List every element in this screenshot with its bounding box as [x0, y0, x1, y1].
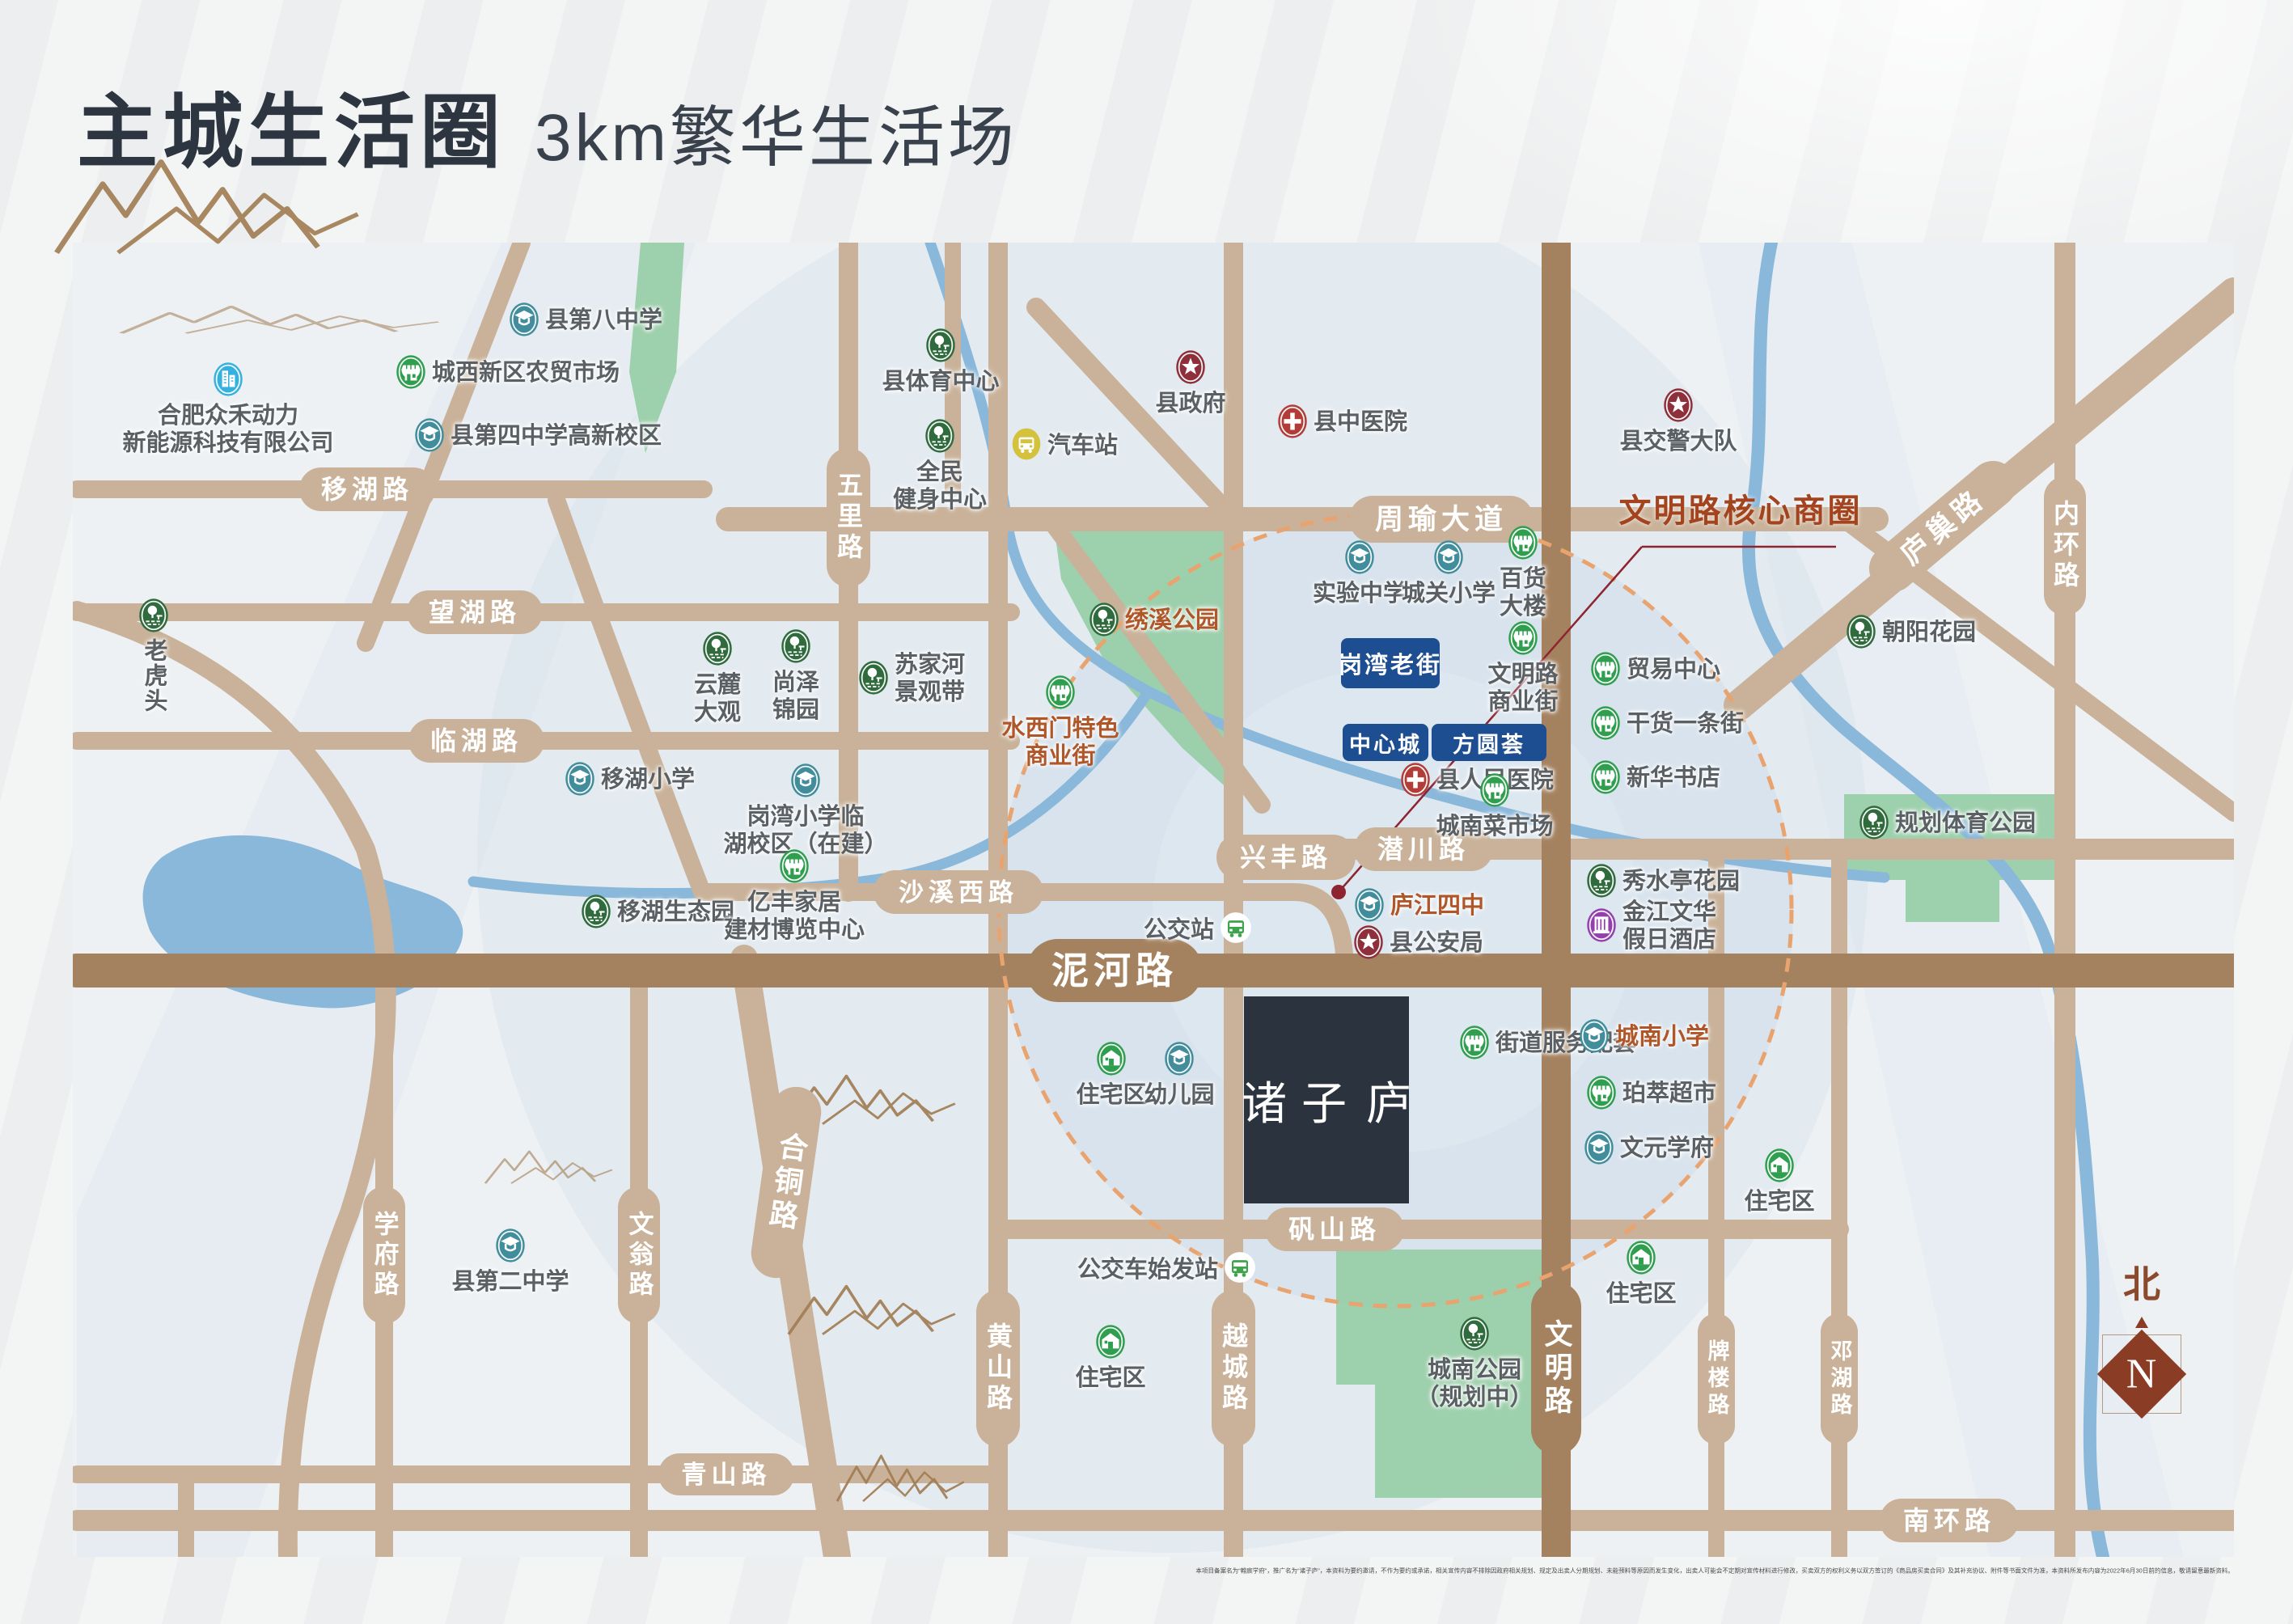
school-icon [509, 302, 539, 343]
poi-label-line: 朝阳花园 [1882, 619, 1976, 646]
park-icon [1459, 1316, 1490, 1357]
poi-label: 珀萃超市 [1622, 1080, 1716, 1107]
hotel-icon [1586, 907, 1617, 949]
shop-icon [1508, 525, 1538, 566]
poi-label: 苏家河景观带 [895, 651, 965, 706]
busGreen-icon [1224, 1251, 1256, 1288]
park-icon [702, 631, 733, 672]
road-label: 学府路 [363, 1186, 405, 1324]
map: 移湖路 望湖路 临湖路 周瑜大道 五里路 潜川路 兴丰路 沙溪西路 泥河路 矾山… [0, 0, 2293, 1624]
commercial-badge: 岗湾老街 [1341, 638, 1440, 688]
house-icon [1095, 1324, 1126, 1365]
busYellow-icon [1011, 427, 1042, 467]
map-overlay: 移湖路 望湖路 临湖路 周瑜大道 五里路 潜川路 兴丰路 沙溪西路 泥河路 矾山… [0, 0, 2293, 1624]
poi-label-line: 干货一条街 [1627, 710, 1744, 738]
poi-label-line: 全民 [893, 459, 987, 486]
school-icon [495, 1228, 526, 1269]
school-icon [414, 417, 445, 459]
poi-label: 规划体育公园 [1895, 810, 2036, 837]
poi-label-line: 城南菜市场 [1436, 813, 1553, 840]
poi-label: 全民健身中心 [893, 459, 987, 514]
road-label: 临湖路 [408, 719, 544, 763]
poi-label: 县第四中学高新校区 [451, 422, 662, 450]
poi-label-line: 幼儿园 [1144, 1081, 1214, 1109]
compass-letter: N [2126, 1351, 2157, 1398]
poi-label: 县第二中学 [451, 1268, 569, 1296]
gov-icon [1175, 349, 1206, 391]
gov-icon [1353, 924, 1384, 966]
road-label: 越城路 [1212, 1290, 1255, 1447]
poi-label-line: 建材博览中心 [724, 916, 865, 944]
poi-label-line: 汽车站 [1047, 432, 1118, 459]
commercial-badge: 中心城 [1343, 724, 1428, 761]
road-label: 五里路 [827, 448, 870, 587]
park-icon [138, 598, 169, 639]
compass-frame: N [2102, 1334, 2181, 1414]
poi-label-line: 文元学府 [1620, 1135, 1714, 1162]
poi-label-line: 金江文华 [1622, 899, 1716, 926]
poi-label: 住宅区 [1075, 1364, 1145, 1392]
poi-label-line: 合肥众禾动力 [122, 402, 333, 429]
park-icon [581, 894, 611, 935]
poi-label: 实验中学 [1313, 580, 1407, 607]
poi-label-line: 县政府 [1155, 390, 1225, 417]
poi-label: 金江文华假日酒店 [1622, 899, 1716, 954]
poi-label-line: 岗湾小学临 [723, 803, 887, 831]
school-icon [1164, 1041, 1195, 1082]
park-icon [1089, 602, 1119, 643]
project-block: 诸 子 庐 [1244, 996, 1409, 1203]
poi-label-line: 移湖小学 [601, 766, 695, 793]
poi-label: 城南公园（规划中） [1415, 1356, 1533, 1411]
poi-label: 县公安局 [1390, 929, 1483, 957]
road-label: 泥河路 [1026, 939, 1203, 1002]
park-icon [781, 628, 811, 670]
poi-label-line: 文明路 [1487, 661, 1558, 688]
poi-label: 尚泽锦园 [772, 669, 819, 724]
poi-label-line: 新能源科技有限公司 [122, 429, 333, 457]
road-label: 黄山路 [976, 1290, 1020, 1447]
poi-label-line: 亿丰家居 [724, 889, 865, 916]
school-icon [565, 761, 595, 802]
poi-label-line: 百货 [1500, 565, 1546, 593]
poi-label: 合肥众禾动力新能源科技有限公司 [122, 402, 333, 457]
company-icon [213, 362, 243, 403]
house-icon [1626, 1240, 1656, 1281]
poi-label-line: 城西新区农贸市场 [432, 359, 620, 387]
park-icon [858, 660, 889, 701]
poi-label-line: 县体育中心 [882, 368, 999, 395]
poi-label-line: 城关小学 [1402, 580, 1496, 607]
poi-label: 县第八中学 [545, 307, 662, 334]
poi-label-line: 县中医院 [1314, 408, 1407, 436]
poi-label: 县体育中心 [882, 368, 999, 395]
poi-label-line: 县公安局 [1390, 929, 1483, 957]
poi-label: 老虎头 [140, 638, 167, 713]
poi-label: 住宅区 [1076, 1081, 1146, 1109]
disclaimer: 本项目备案名为“翰宸学府”，推广名为“诸子庐”，本资料为要约邀请，不作为要约或承… [1195, 1566, 2234, 1575]
school-icon [1354, 887, 1385, 928]
shop-icon [1508, 620, 1538, 662]
poi-label-line: 实验中学 [1313, 580, 1407, 607]
shop-icon [1586, 1075, 1617, 1116]
poi-label: 水西门特色商业街 [1001, 715, 1119, 770]
house-icon [1096, 1041, 1127, 1082]
poi-label-line: 住宅区 [1744, 1188, 1814, 1216]
road-label: 南环路 [1880, 1499, 2019, 1542]
poi-label-line: 健身中心 [893, 486, 987, 514]
road-label: 庐巢路 [1859, 451, 2026, 602]
shop-icon [1479, 772, 1510, 814]
poi-label-line: 假日酒店 [1622, 926, 1716, 954]
compass-pointer [2135, 1317, 2148, 1328]
poi-label-line: 贸易中心 [1627, 656, 1720, 683]
school-icon [790, 763, 821, 804]
poi-label-line: 锦园 [772, 696, 819, 724]
poi-label: 城南菜市场 [1436, 813, 1553, 840]
poi-label: 汽车站 [1047, 432, 1118, 459]
poi-label-line: 水西门特色 [1001, 715, 1119, 742]
road-label: 矾山路 [1265, 1207, 1404, 1251]
poi-label: 公交车始发站 [1077, 1256, 1218, 1284]
poi-label: 亿丰家居建材博览中心 [724, 889, 865, 944]
commercial-badge: 方圆荟 [1432, 724, 1546, 761]
poi-label-line: 绣溪公园 [1125, 607, 1219, 634]
poi-label: 幼儿园 [1144, 1081, 1214, 1109]
poi-label: 城关小学 [1402, 580, 1496, 607]
park-icon [1859, 805, 1889, 846]
project-name-char: 子 [1301, 1068, 1347, 1133]
gov-icon [1663, 387, 1694, 429]
park-icon [1586, 863, 1617, 904]
school-icon [1344, 539, 1375, 581]
poi-label-line: 云麓 [694, 671, 741, 699]
poi-label: 秀水亭花园 [1622, 868, 1740, 895]
school-icon [1579, 1018, 1610, 1059]
shop-icon [1590, 759, 1621, 801]
poi-label-line: 珀萃超市 [1622, 1080, 1716, 1107]
poi-label: 新华书店 [1627, 764, 1720, 792]
poi-label: 朝阳花园 [1882, 619, 1976, 646]
road-label: 文翁路 [618, 1186, 660, 1324]
poi-label: 庐江四中 [1390, 892, 1484, 920]
poi-label: 县中医院 [1314, 408, 1407, 436]
poi-label-line: 住宅区 [1606, 1280, 1676, 1308]
poi-label-line: 县交警大队 [1619, 428, 1737, 455]
poi-label-line: 县第八中学 [545, 307, 662, 334]
road-label: 牌楼路 [1698, 1313, 1735, 1444]
road-label: 邓湖路 [1821, 1313, 1858, 1444]
school-icon [1584, 1130, 1614, 1171]
poi-label-line: （规划中） [1415, 1384, 1533, 1411]
compass: 北 N [2100, 1255, 2184, 1414]
park-icon [1846, 614, 1876, 655]
road-label: 沙溪西路 [874, 870, 1043, 914]
compass-north-label: 北 [2100, 1255, 2184, 1309]
road-label: 周瑜大道 [1349, 496, 1534, 543]
poi-label-line: 城南小学 [1615, 1023, 1709, 1051]
poi-label: 文元学府 [1620, 1135, 1714, 1162]
poi-label: 百货大楼 [1500, 565, 1546, 620]
compass-diamond: N [2097, 1330, 2186, 1419]
road-label: 内环路 [2044, 476, 2086, 615]
poi-label: 贸易中心 [1627, 656, 1720, 683]
poi-label: 住宅区 [1606, 1280, 1676, 1308]
park-icon [925, 328, 956, 369]
poi-label-line: 县第二中学 [451, 1268, 569, 1296]
road-label: 兴丰路 [1216, 835, 1356, 880]
project-name-char: 庐 [1366, 1068, 1411, 1133]
poi-label-line: 新华书店 [1627, 764, 1720, 792]
road-label: 文明路 [1531, 1282, 1581, 1455]
road-label: 望湖路 [407, 590, 543, 634]
poi-label-line: 城南公园 [1415, 1356, 1533, 1384]
poi-label-line: 县第四中学高新校区 [451, 422, 662, 450]
callout-label: 文明路核心商圈 [1619, 484, 1863, 531]
hospital-icon [1277, 404, 1308, 445]
poi-label: 云麓大观 [694, 671, 741, 726]
poi-label-line: 商业街 [1001, 742, 1119, 770]
poi-label: 县交警大队 [1619, 428, 1737, 455]
shop-icon [1045, 675, 1076, 716]
poi-label-line: 尚泽 [772, 669, 819, 696]
road-label: 移湖路 [299, 467, 435, 511]
poi-label-line: 商业街 [1487, 688, 1558, 716]
shop-icon [1590, 705, 1621, 746]
poi-label: 公交站 [1144, 916, 1214, 944]
road-label: 合铜路 [748, 1084, 825, 1281]
poi-label-line: 公交车始发站 [1077, 1256, 1218, 1284]
school-icon [1433, 539, 1464, 581]
poi-label: 城南小学 [1615, 1023, 1709, 1051]
poi-label: 移湖生态园 [617, 899, 734, 926]
shop-icon [779, 848, 810, 890]
poi-label-line: 秀水亭花园 [1622, 868, 1740, 895]
poi-label-line: 大楼 [1500, 593, 1546, 620]
poi-label: 文明路商业街 [1487, 661, 1558, 716]
poi-label: 城西新区农贸市场 [432, 359, 620, 387]
shop-icon [1590, 651, 1621, 692]
poi-label-line: 苏家河 [895, 651, 965, 679]
stage: 主城生活圈 3km繁华生活场 移湖路 望湖路 临湖路 周瑜大道 五里路 潜川路 … [0, 0, 2293, 1624]
poi-label-line: 移湖生态园 [617, 899, 734, 926]
poi-label: 移湖小学 [601, 766, 695, 793]
shop-icon [396, 354, 426, 395]
shop-icon [1459, 1025, 1490, 1066]
poi-label-line: 景观带 [895, 679, 965, 706]
poi-label: 绣溪公园 [1125, 607, 1219, 634]
poi-label-line: 住宅区 [1076, 1081, 1146, 1109]
busGreen-icon [1220, 911, 1252, 948]
poi-label: 干货一条街 [1627, 710, 1744, 738]
hospital-icon [1400, 762, 1431, 803]
poi-label-line: 大观 [694, 699, 741, 726]
road-label: 青山路 [658, 1453, 794, 1495]
project-name-char: 诸 [1242, 1068, 1287, 1133]
house-icon [1764, 1148, 1795, 1189]
poi-label-line: 住宅区 [1075, 1364, 1145, 1392]
poi-label-line: 公交站 [1144, 916, 1214, 944]
poi-label: 住宅区 [1744, 1188, 1814, 1216]
poi-label-line: 老虎头 [140, 638, 167, 713]
poi-label-line: 庐江四中 [1390, 892, 1484, 920]
poi-label-line: 规划体育公园 [1895, 810, 2036, 837]
park-icon [924, 418, 955, 459]
poi-label: 县政府 [1155, 390, 1225, 417]
